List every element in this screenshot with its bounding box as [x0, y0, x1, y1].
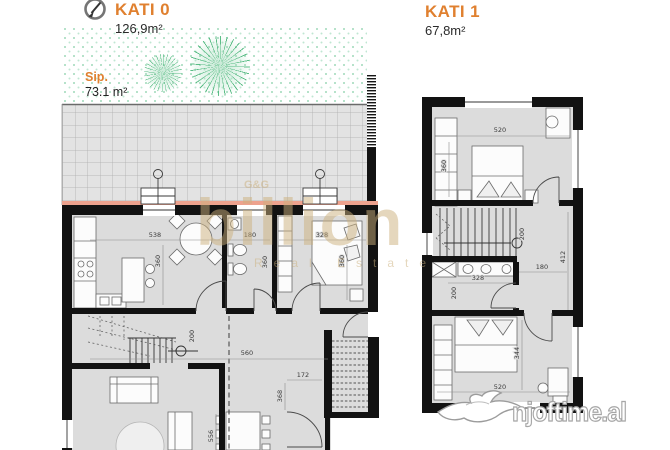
dim-label: 520 [494, 383, 506, 391]
floorplan-canvas: 538 360 180 328 360 360 200 560 172 368 … [0, 0, 670, 450]
floor0-title: KATI 0 [115, 0, 170, 20]
floor0-header: KATI 0 126,9m² [82, 0, 170, 36]
kati0-floor-cut [331, 418, 378, 450]
garden-label-area: 73.1 m² [85, 85, 127, 99]
dim-label: 180 [536, 263, 548, 271]
garden-label-title: Sip. [85, 70, 127, 84]
dim-label: 200 [450, 287, 458, 299]
dim-label: 180 [244, 231, 256, 239]
dim-label: 200 [188, 330, 196, 342]
tree-icon [190, 36, 250, 96]
dim-label: 328 [472, 274, 484, 282]
dim-label: 538 [149, 231, 161, 239]
floorplan-drawing: 538 360 180 328 360 360 200 560 172 368 … [0, 0, 670, 450]
dim-label: 200 [518, 228, 526, 240]
dim-label: 520 [494, 126, 506, 134]
dim-label: 360 [440, 160, 448, 172]
floor0-area: 126,9m² [115, 21, 170, 36]
dim-label: 368 [276, 390, 284, 402]
garden-area-label: Sip. 73.1 m² [85, 70, 127, 99]
dim-label: 360 [154, 255, 162, 267]
floor1-header: KATI 1 67,8m² [425, 2, 480, 38]
dim-label: 328 [316, 231, 328, 239]
floor1-area: 67,8m² [425, 23, 480, 38]
dim-label: 556 [207, 430, 215, 442]
dim-label: 172 [297, 371, 309, 379]
floor1-title: KATI 1 [425, 2, 480, 22]
dim-label: 560 [241, 349, 253, 357]
north-compass-icon [82, 0, 108, 23]
dim-label: 412 [559, 251, 567, 263]
terrace-side-wall [367, 75, 376, 214]
tree-icon [144, 54, 182, 92]
dim-label: 360 [261, 256, 269, 268]
dim-label: 360 [338, 255, 346, 267]
dim-label: 344 [513, 347, 521, 359]
